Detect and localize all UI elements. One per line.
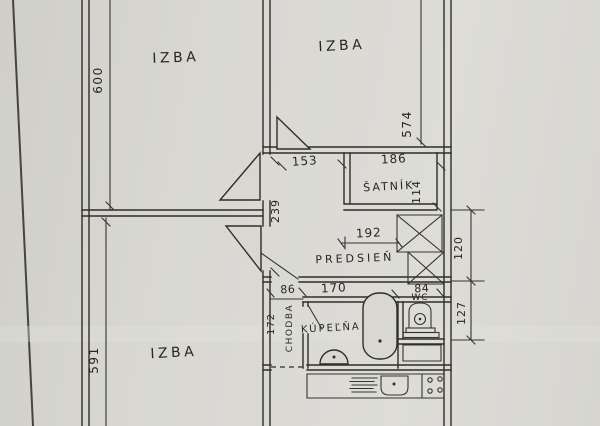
dim-predsien-width: 192 — [355, 225, 382, 240]
dim-shaft-recess-depth: 120 — [452, 236, 465, 260]
door-chodba-leaf — [261, 253, 298, 279]
kitchen-counter — [307, 374, 444, 398]
room-label-chodba: CHODBA — [285, 304, 295, 352]
dim-izba-top-right-depth: 574 — [400, 110, 414, 137]
bathtub-drain-dot — [378, 339, 381, 342]
dim-izba-top-left-depth: 600 — [91, 66, 105, 93]
dim-predsien-nook-width: 153 — [291, 153, 318, 169]
dim-wc-depth: 127 — [455, 301, 468, 325]
door-izba-bottom-left — [226, 226, 261, 271]
room-label-izba-bottom-left: IZBA — [150, 344, 198, 362]
dim-kupelna-width: 170 — [320, 280, 347, 295]
door-izba-top-right — [277, 117, 310, 149]
floor-plan-page: IZBA IZBA IZBA ŠATNÍK PREDSIEŇ KÚPEĽŇA C… — [0, 0, 600, 426]
kitchen-sink — [381, 376, 408, 395]
bathtub — [363, 293, 397, 359]
shaft-x-box-lower — [408, 252, 444, 284]
dim-satnik-depth: 114 — [410, 180, 423, 204]
room-label-izba-top-left: IZBA — [152, 49, 199, 67]
drainboard-lines — [350, 378, 377, 392]
door-swings — [220, 117, 310, 279]
floor-plan-drawing: IZBA IZBA IZBA ŠATNÍK PREDSIEŇ KÚPEĽŇA C… — [0, 0, 600, 426]
dim-wc-width: 84 — [414, 282, 430, 296]
page-edge-line — [13, 0, 33, 426]
dim-izba-bottom-left-depth: 591 — [87, 346, 101, 373]
shaft-x-box-upper — [397, 215, 442, 252]
room-label-satnik: ŠATNÍK — [363, 179, 415, 195]
sink-tap-dot — [393, 383, 396, 386]
dim-predsien-nook-depth: 239 — [269, 199, 282, 223]
dim-satnik-width: 186 — [380, 151, 407, 166]
door-izba-top-left — [220, 153, 260, 200]
wc-niche — [403, 345, 441, 361]
stove-burners — [428, 377, 442, 393]
washbasin-tap-dot — [333, 356, 336, 359]
room-label-izba-top-right: IZBA — [318, 37, 366, 55]
dim-chodba-width: 86 — [280, 283, 296, 297]
dim-chodba-length: 172 — [266, 313, 277, 335]
outer-walls — [82, 0, 451, 426]
room-label-predsien: PREDSIEŇ — [315, 251, 395, 267]
toilet — [403, 303, 439, 338]
shaft-boxes — [397, 215, 444, 284]
